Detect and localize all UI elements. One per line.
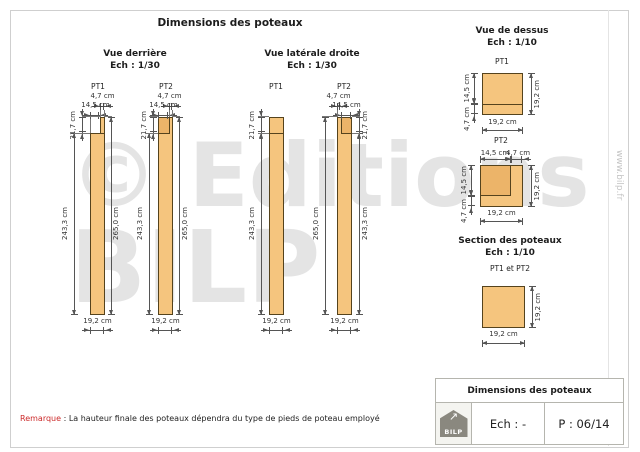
dim-label: 243,3 cm <box>136 207 144 240</box>
dim-line <box>329 327 360 334</box>
side-view-title: Vue latérale droite <box>252 49 372 59</box>
dim-label: 19,2 cm <box>534 293 542 321</box>
remark-note: Remarque : La hauteur finale des poteaux… <box>20 414 380 423</box>
side-pt2-body <box>337 117 352 315</box>
top-pt2-tenon <box>480 165 511 196</box>
dim-label: 14,5 cm <box>145 101 182 109</box>
extension-line <box>352 133 360 134</box>
dim-label: 19,2 cm <box>484 118 521 126</box>
section-subtitle: PT1 et PT2 <box>470 264 550 273</box>
plan-sheet: © Editions BILP www.bilp.fr Dimensions d… <box>0 0 640 452</box>
extension-line <box>258 116 269 117</box>
section-square <box>482 286 525 328</box>
side-pt1-body <box>269 117 284 315</box>
extension-line <box>149 116 158 117</box>
dim-label: 243,3 cm <box>361 207 369 240</box>
extension-line <box>173 116 180 117</box>
extension-line <box>100 110 101 117</box>
extension-line <box>322 116 337 117</box>
dim-label: 14,5 cm <box>328 101 365 109</box>
extension-line <box>104 110 105 117</box>
dim-label: 19,2 cm <box>483 209 520 217</box>
dim-label: 19,2 cm <box>147 317 184 325</box>
dim-label: 265,0 cm <box>312 207 320 240</box>
dim-line <box>322 117 329 315</box>
remark-text: : La hauteur finale des poteaux dépendra… <box>61 414 380 423</box>
label-back-pt2: PT2 <box>146 82 186 91</box>
page-title: Dimensions des poteaux <box>115 17 345 29</box>
dim-label: 19,2 cm <box>533 80 541 108</box>
title-block: Dimensions des poteaux ↗ BILP Ech : - P … <box>435 378 624 445</box>
dim-label: 4,7 cm <box>84 92 121 100</box>
page-number-cell: P : 06/14 <box>545 403 623 444</box>
dim-line <box>482 340 525 347</box>
top-view-scale: Ech : 1/10 <box>452 38 572 48</box>
dim-line <box>482 127 523 134</box>
dim-label: 4,7 cm <box>463 107 471 131</box>
extension-line <box>352 116 360 117</box>
dim-line <box>480 218 523 225</box>
dim-label: 14,5 cm <box>463 74 471 102</box>
dim-line <box>71 133 78 315</box>
title-block-title: Dimensions des poteaux <box>436 379 623 403</box>
dim-label: 19,2 cm <box>326 317 363 325</box>
top-pt1-square <box>482 73 523 115</box>
remark-label: Remarque <box>20 414 61 423</box>
label-back-pt1: PT1 <box>78 82 118 91</box>
back-pt1-tenon <box>100 117 105 134</box>
dim-label: 243,3 cm <box>61 207 69 240</box>
side-view-scale: Ech : 1/30 <box>252 61 372 71</box>
extension-line <box>146 133 158 134</box>
dim-line <box>471 96 478 123</box>
extension-line <box>90 119 91 133</box>
logo-arrow-icon: ↗ <box>440 411 468 423</box>
back-pt2-body <box>158 117 173 315</box>
dim-label: 4,7 cm <box>320 92 357 100</box>
extension-line <box>337 110 338 117</box>
top-view-title: Vue de dessus <box>452 26 572 36</box>
scale-cell: Ech : - <box>472 403 545 444</box>
dim-line <box>261 327 292 334</box>
extension-line <box>172 110 173 117</box>
section-view-title: Section des poteaux <box>445 236 575 246</box>
dim-label: 14,5 cm <box>460 166 468 194</box>
extension-line <box>74 133 90 134</box>
dim-line <box>146 133 153 315</box>
dim-label: 19,2 cm <box>258 317 295 325</box>
dim-line <box>82 327 113 334</box>
back-view-scale: Ech : 1/30 <box>75 61 195 71</box>
section-view-scale: Ech : 1/10 <box>445 248 575 258</box>
dim-line <box>79 109 86 141</box>
dim-label: 19,2 cm <box>485 330 522 338</box>
dim-line <box>150 327 181 334</box>
side-pt2-notch <box>341 117 352 134</box>
extension-line <box>105 116 112 117</box>
back-pt2-notch <box>158 117 170 134</box>
label-side-pt2: PT2 <box>324 82 364 91</box>
dim-line <box>468 188 475 215</box>
label-top-pt2: PT2 <box>481 136 521 145</box>
top-pt1-line <box>482 104 523 105</box>
dim-label: 19,2 cm <box>79 317 116 325</box>
dim-label: 14,5 cm <box>77 101 114 109</box>
side-pt1-shoulder-line <box>269 133 284 134</box>
extension-line <box>169 110 170 117</box>
logo-cell: ↗ BILP <box>436 403 472 444</box>
label-top-pt1: PT1 <box>482 57 522 66</box>
dim-label: 4,7 cm <box>460 199 468 223</box>
dim-label: 243,3 cm <box>248 207 256 240</box>
extension-line <box>258 133 269 134</box>
back-pt1-body <box>90 133 105 315</box>
dim-label: 21,7 cm <box>248 111 256 139</box>
dim-line <box>258 133 265 315</box>
dim-label: 265,0 cm <box>181 207 189 240</box>
label-side-pt1: PT1 <box>256 82 296 91</box>
back-view-title: Vue derrière <box>75 49 195 59</box>
dim-label: 265,0 cm <box>112 207 120 240</box>
dim-line <box>503 156 531 163</box>
bilp-logo: ↗ BILP <box>440 410 468 437</box>
dim-label: 4,7 cm <box>151 92 188 100</box>
logo-text: BILP <box>440 428 468 436</box>
dim-label: 19,2 cm <box>533 172 541 200</box>
extension-line <box>82 116 100 117</box>
